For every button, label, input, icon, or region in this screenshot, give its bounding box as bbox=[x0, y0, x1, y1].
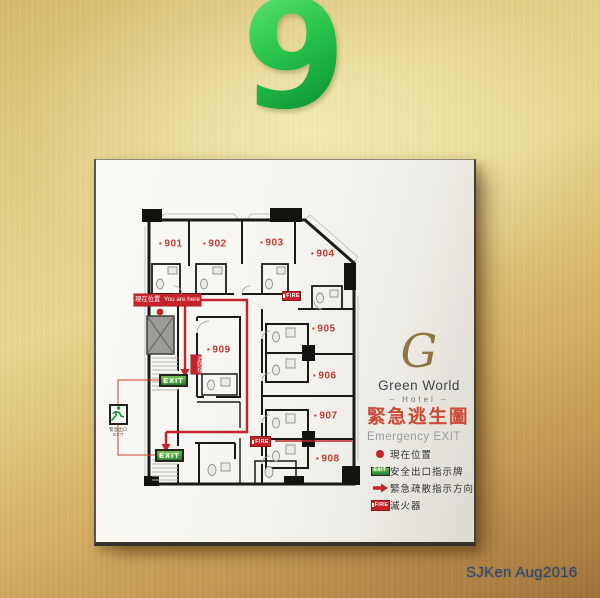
hotel-logo: G Green World – Hotel – bbox=[368, 328, 470, 404]
caption-en: EXIT bbox=[102, 432, 135, 437]
exit-sign-upper: EXIT bbox=[159, 374, 188, 387]
title-english: Emergency EXIT bbox=[367, 431, 471, 443]
location-dot-icon bbox=[370, 450, 390, 458]
room-label-905: 905 bbox=[312, 324, 335, 335]
hotel-hallway-photo: 9 bbox=[0, 0, 600, 598]
emergency-exit-sign: 現在位置 You are here 901 902 903 904 905 90… bbox=[94, 159, 476, 546]
room-label-907: 907 bbox=[314, 411, 337, 422]
room-dot bbox=[314, 415, 316, 417]
fire-extinguisher-lower: FIRE bbox=[250, 436, 271, 447]
room-label-902: 902 bbox=[203, 239, 226, 250]
emergency-exit-running-man-icon bbox=[109, 404, 128, 425]
room-dot bbox=[207, 349, 209, 351]
hotel-name: Green World bbox=[368, 378, 470, 393]
direction-arrow-icon bbox=[370, 483, 390, 493]
room-label-903: 903 bbox=[260, 238, 283, 249]
room-dot bbox=[311, 253, 313, 255]
room-dot bbox=[316, 458, 318, 460]
fire-extinguisher-icon: FIRE bbox=[370, 500, 390, 511]
logo-g-monogram: G bbox=[368, 328, 470, 374]
you-are-here-en: You are here bbox=[164, 296, 200, 303]
fire-extinguisher-upper: FIRE bbox=[282, 291, 301, 301]
room-label-908: 908 bbox=[316, 454, 339, 465]
fire-hydrant-label: 消防栓 bbox=[191, 355, 201, 374]
room-label-901: 901 bbox=[159, 239, 182, 250]
floor-number: 9 bbox=[206, 0, 382, 131]
you-are-here-zh: 現在位置 bbox=[135, 296, 160, 303]
room-dot bbox=[313, 375, 315, 377]
room-dot bbox=[159, 243, 161, 245]
sign-title: 緊急逃生圖 Emergency EXIT bbox=[367, 403, 471, 443]
room-dot bbox=[203, 243, 205, 245]
emergency-exit-icon-caption: 緊急出口 EXIT bbox=[102, 427, 135, 438]
running-man-glyph bbox=[111, 406, 124, 421]
room-dot bbox=[260, 242, 262, 244]
exit-sign-icon: EXIT bbox=[370, 467, 390, 476]
you-are-here-dot bbox=[157, 309, 164, 316]
photographer-watermark: SJKen Aug2016 bbox=[466, 564, 578, 581]
exit-sign-lower: EXIT bbox=[155, 449, 184, 462]
legend-row-evacuation-direction: 緊急疏散指示方向 bbox=[370, 482, 474, 494]
legend-row-current-location: 現在位置 bbox=[370, 448, 474, 460]
legend: 現在位置 EXIT 安全出口指示牌 緊急疏散指示方向 FIRE 滅火器 bbox=[370, 448, 474, 516]
title-chinese: 緊急逃生圖 bbox=[367, 403, 471, 429]
legend-row-fire-extinguisher: FIRE 滅火器 bbox=[370, 499, 474, 511]
room-label-906: 906 bbox=[313, 371, 336, 382]
floor-plan: 現在位置 You are here 901 902 903 904 905 90… bbox=[104, 206, 366, 492]
room-dot bbox=[312, 328, 314, 330]
elevator bbox=[147, 316, 174, 354]
legend-row-exit-sign: EXIT 安全出口指示牌 bbox=[370, 465, 474, 477]
room-label-904: 904 bbox=[311, 249, 334, 260]
room-label-909: 909 bbox=[207, 345, 230, 356]
you-are-here-banner: 現在位置 You are here bbox=[134, 294, 201, 306]
